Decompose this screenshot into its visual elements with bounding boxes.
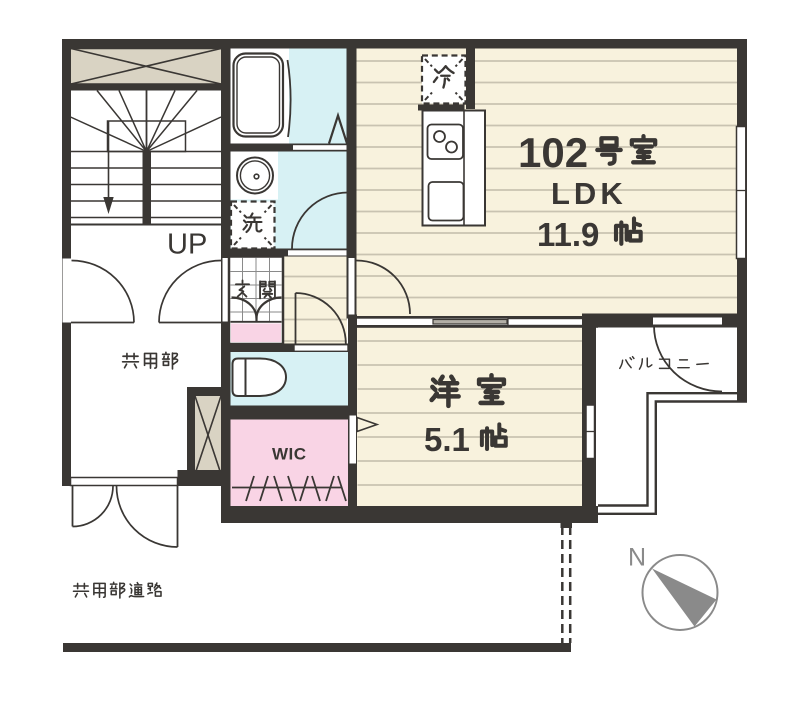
svg-text:N: N (628, 544, 646, 572)
svg-text:UP: UP (167, 229, 207, 261)
svg-text:11.9: 11.9 (537, 216, 599, 253)
svg-text:5.1: 5.1 (424, 421, 470, 458)
svg-text:LDK: LDK (551, 176, 627, 211)
svg-text:102: 102 (518, 129, 588, 176)
svg-text:WIC: WIC (272, 445, 307, 464)
